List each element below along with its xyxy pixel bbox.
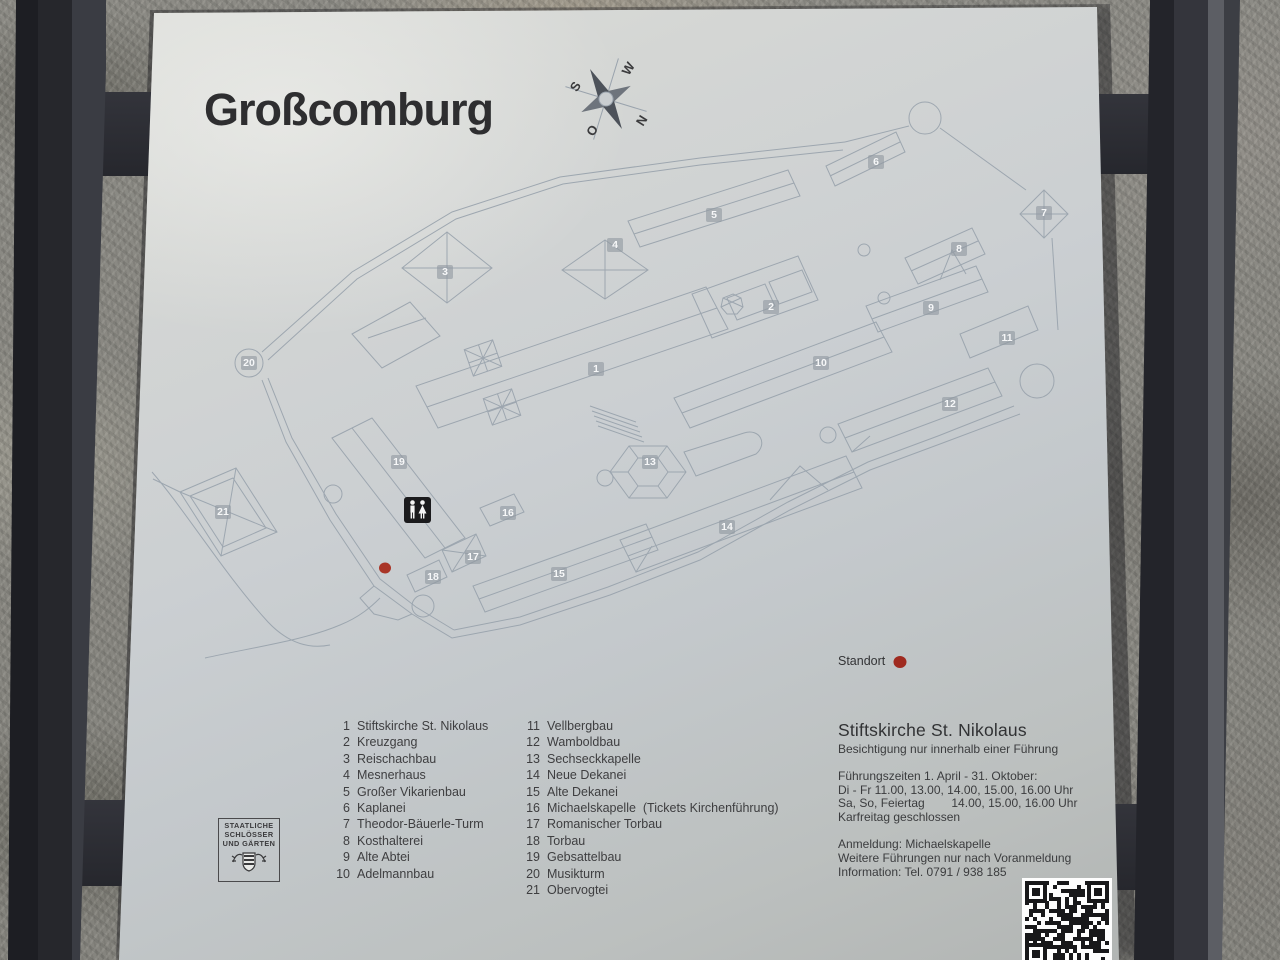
legend-item: 10Adelmannbau: [330, 866, 488, 882]
map-badge-11: 11: [999, 331, 1015, 345]
map-badge-8: 8: [951, 242, 967, 256]
visiting-info: Stiftskirche St. Nikolaus Besichtigung n…: [838, 720, 1088, 879]
map-badge-15: 15: [551, 567, 567, 581]
location-dot-map: [379, 563, 391, 574]
map-badge-12: 12: [942, 397, 958, 411]
legend-item: 21Obervogtei: [520, 882, 779, 898]
legend-item: 13Sechseckkapelle: [520, 751, 779, 767]
legend-item: 9Alte Abtei: [330, 849, 488, 865]
wc-icon: [404, 497, 431, 523]
standort-label: Standort: [838, 654, 885, 668]
info-line: Di - Fr 11.00, 13.00, 14.00, 15.00, 16.0…: [838, 784, 1088, 798]
info-subheading: Besichtigung nur innerhalb einer Führung: [838, 743, 1088, 757]
legend-item: 4Mesnerhaus: [330, 767, 488, 783]
legend-item: 5Großer Vikarienbau: [330, 784, 488, 800]
legend-item: 6Kaplanei: [330, 800, 488, 816]
map-badge-5: 5: [706, 208, 722, 222]
map-badge-7: 7: [1036, 206, 1052, 220]
legend-item: 12Wamboldbau: [520, 734, 779, 750]
info-line: Sa, So, Feiertag 14.00, 15.00, 16.00 Uhr: [838, 797, 1088, 811]
qr-finder: [1025, 943, 1047, 960]
photo-of-sign: Großcomburg S W O N 1 2 3 4 5 6 7 8 9 10…: [0, 0, 1280, 960]
legend-item: 14Neue Dekanei: [520, 767, 779, 783]
map-badge-2: 2: [763, 300, 779, 314]
map-badge-18: 18: [425, 570, 441, 584]
map-badge-10: 10: [813, 356, 829, 370]
qr-finder: [1025, 881, 1047, 903]
map-badge-14: 14: [719, 520, 735, 534]
info-line: Anmeldung: Michaelskapelle: [838, 838, 1088, 852]
qr-pattern: [1025, 881, 1109, 960]
map-badge-9: 9: [923, 301, 939, 315]
legend-column-1: 1Stiftskirche St. Nikolaus 2Kreuzgang 3R…: [330, 718, 488, 882]
legend-item: 7Theodor-Bäuerle-Turm: [330, 816, 488, 832]
legend-item: 11Vellbergbau: [520, 718, 779, 734]
map-badge-21: 21: [215, 505, 231, 519]
map-badge-3: 3: [437, 265, 453, 279]
sign-panel: Großcomburg S W O N 1 2 3 4 5 6 7 8 9 10…: [0, 0, 1280, 960]
map-badge-6: 6: [868, 155, 884, 169]
legend-item: 18Torbau: [520, 833, 779, 849]
qr-code: [1022, 878, 1112, 960]
info-line: Führungszeiten 1. April - 31. Oktober:: [838, 770, 1088, 784]
info-line: Weitere Führungen nur nach Voranmeldung: [838, 852, 1088, 866]
coat-of-arms: [229, 850, 269, 874]
legend-item: 3Reischachbau: [330, 751, 488, 767]
info-line: Karfreitag geschlossen: [838, 811, 1088, 825]
info-heading: Stiftskirche St. Nikolaus: [838, 720, 1088, 741]
map-badge-16: 16: [500, 506, 516, 520]
map-badge-1: 1: [588, 362, 604, 376]
legend-column-2: 11Vellbergbau 12Wamboldbau 13Sechseckkap…: [520, 718, 779, 898]
qr-finder: [1087, 881, 1109, 903]
map-badge-19: 19: [391, 455, 407, 469]
map-badge-20: 20: [241, 356, 257, 370]
map-badge-17: 17: [465, 550, 481, 564]
legend-item: 1Stiftskirche St. Nikolaus: [330, 718, 488, 734]
map-badge-4: 4: [607, 238, 623, 252]
legend-item: 8Kosthalterei: [330, 833, 488, 849]
legend-item: 20Musikturm: [520, 866, 779, 882]
map-badge-13: 13: [642, 455, 658, 469]
location-dot-legend: [894, 656, 907, 668]
legend-item: 16Michaelskapelle (Tickets Kirchenführun…: [520, 800, 779, 816]
legend-item: 19Gebsattelbau: [520, 849, 779, 865]
state-palaces-logo: STAATLICHE SCHLÖSSER UND GÄRTEN: [218, 818, 280, 882]
legend-item: 15Alte Dekanei: [520, 784, 779, 800]
legend-item: 2Kreuzgang: [330, 734, 488, 750]
legend-item: 17Romanischer Torbau: [520, 816, 779, 832]
